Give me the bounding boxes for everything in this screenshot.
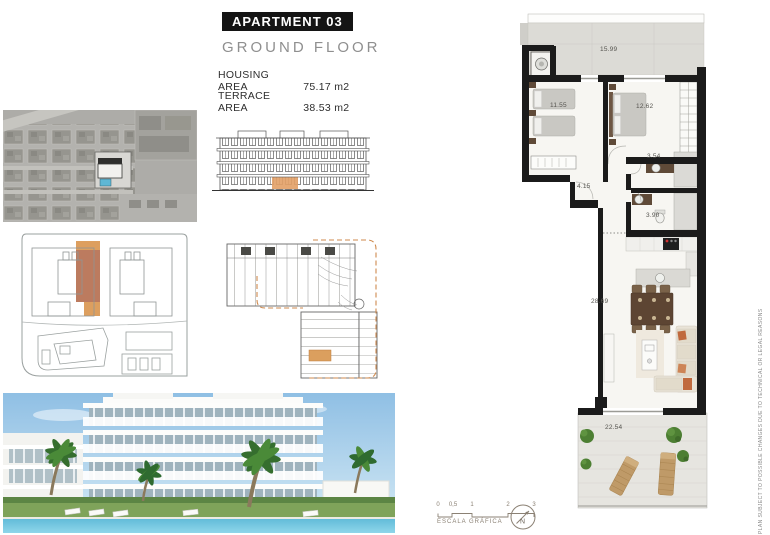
bedroom-2-furniture bbox=[609, 84, 646, 145]
room-label-terrace-bottom: 22.54 bbox=[605, 424, 622, 431]
bedroom-1-furniture bbox=[529, 82, 576, 169]
sink bbox=[656, 274, 665, 283]
room-label-bathroom-1: 3.54 bbox=[647, 153, 660, 160]
elevation-drawing bbox=[212, 122, 374, 206]
site-plan bbox=[8, 228, 196, 388]
coffee-table bbox=[642, 340, 657, 370]
satellite-map bbox=[3, 110, 197, 222]
room-label-bedroom-1: 11.55 bbox=[550, 102, 567, 109]
washing-machine bbox=[531, 52, 552, 76]
unit-marker bbox=[309, 350, 331, 361]
scale-tick-1: 1 bbox=[470, 502, 473, 508]
room-label-bathroom-2: 3.90 bbox=[646, 212, 659, 219]
stove bbox=[663, 238, 679, 250]
apartment-title: APARTMENT 03 bbox=[222, 12, 353, 31]
north-compass: N bbox=[508, 502, 538, 532]
room-label-living-kitchen: 28.69 bbox=[591, 298, 608, 305]
room-label-hall: 4.15 bbox=[577, 183, 590, 190]
terrace-area-label: TERRACE AREA bbox=[218, 90, 300, 114]
disclaimer-text: PLAN SUBJECT TO POSSIBLE CHANGES DUE TO … bbox=[758, 328, 764, 534]
floor-plan: 15.99 11.55 12.62 3.54 4.15 3.90 28.69 2… bbox=[520, 12, 712, 512]
scale-tick-0: 0 bbox=[436, 502, 439, 508]
room-label-bedroom-2: 12.62 bbox=[636, 103, 653, 110]
dining-table bbox=[631, 285, 673, 333]
floor-title: GROUND FLOOR bbox=[222, 39, 381, 56]
pool-area bbox=[38, 328, 172, 374]
tv-unit bbox=[604, 334, 614, 382]
compass-letter: N bbox=[520, 519, 525, 526]
lounger bbox=[658, 453, 676, 496]
terrace-bottom bbox=[578, 413, 707, 508]
building-outlines bbox=[32, 248, 172, 316]
pool-water bbox=[3, 519, 395, 533]
wardrobe bbox=[680, 82, 697, 158]
floor-plan-drawing bbox=[520, 12, 712, 512]
building-photo bbox=[3, 393, 395, 533]
highlight-top bbox=[76, 241, 100, 250]
scale-bar-label: ESCALA GRÁFICA bbox=[437, 519, 503, 525]
terrace-area-value: 38.53 m2 bbox=[303, 102, 349, 114]
scale-tick-05: 0,5 bbox=[449, 502, 457, 508]
terrace-area-row: TERRACE AREA 38.53 m2 bbox=[218, 90, 349, 114]
unit-highlight bbox=[272, 176, 298, 189]
room-label-terrace-top: 15.99 bbox=[600, 46, 617, 53]
key-plan bbox=[213, 220, 381, 388]
highlight-bottom bbox=[84, 302, 100, 316]
highlighted-site bbox=[95, 152, 131, 188]
plan-sheet: APARTMENT 03 GROUND FLOOR HOUSING AREA 7… bbox=[0, 0, 770, 535]
